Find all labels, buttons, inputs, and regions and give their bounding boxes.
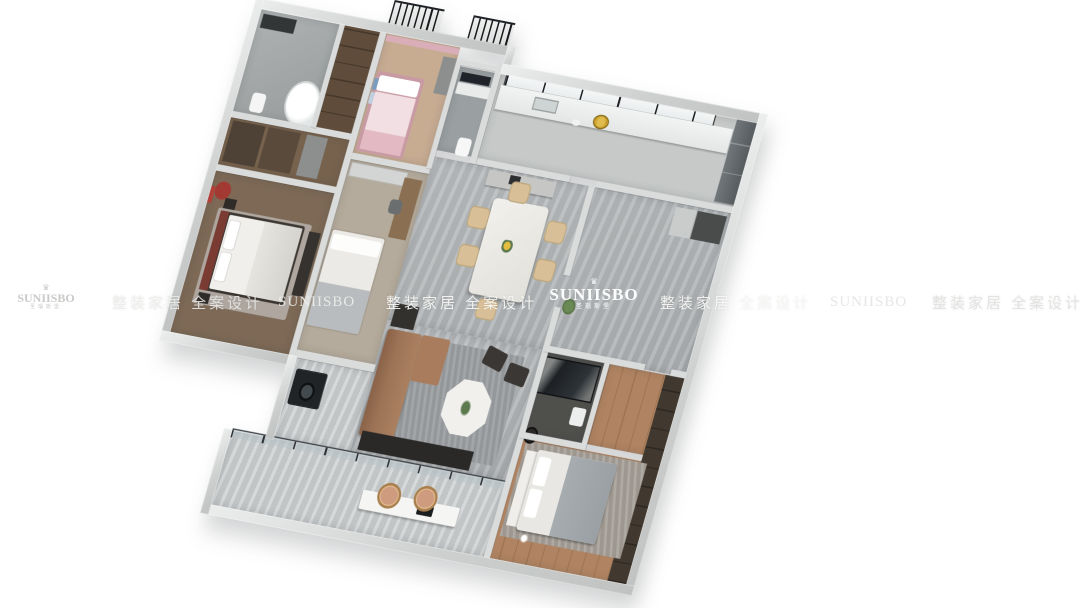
crown-icon: ♛	[6, 284, 86, 292]
floorplan-3d	[121, 0, 790, 603]
watermark-brand: SUNIISBO	[830, 294, 907, 311]
watermark-brand-chinese: 圣瑙斯堡	[6, 305, 86, 310]
watermark-brand: SUNIISBO	[6, 292, 86, 305]
watermark-tagline: 整装家居 全案设计	[932, 292, 1080, 313]
floorplan-render: ♛ SUNIISBO 圣瑙斯堡 整装家居 全案设计 SUNIISBO 整装家居 …	[0, 0, 1080, 608]
brand-logo: ♛ SUNIISBO 圣瑙斯堡	[6, 284, 86, 310]
